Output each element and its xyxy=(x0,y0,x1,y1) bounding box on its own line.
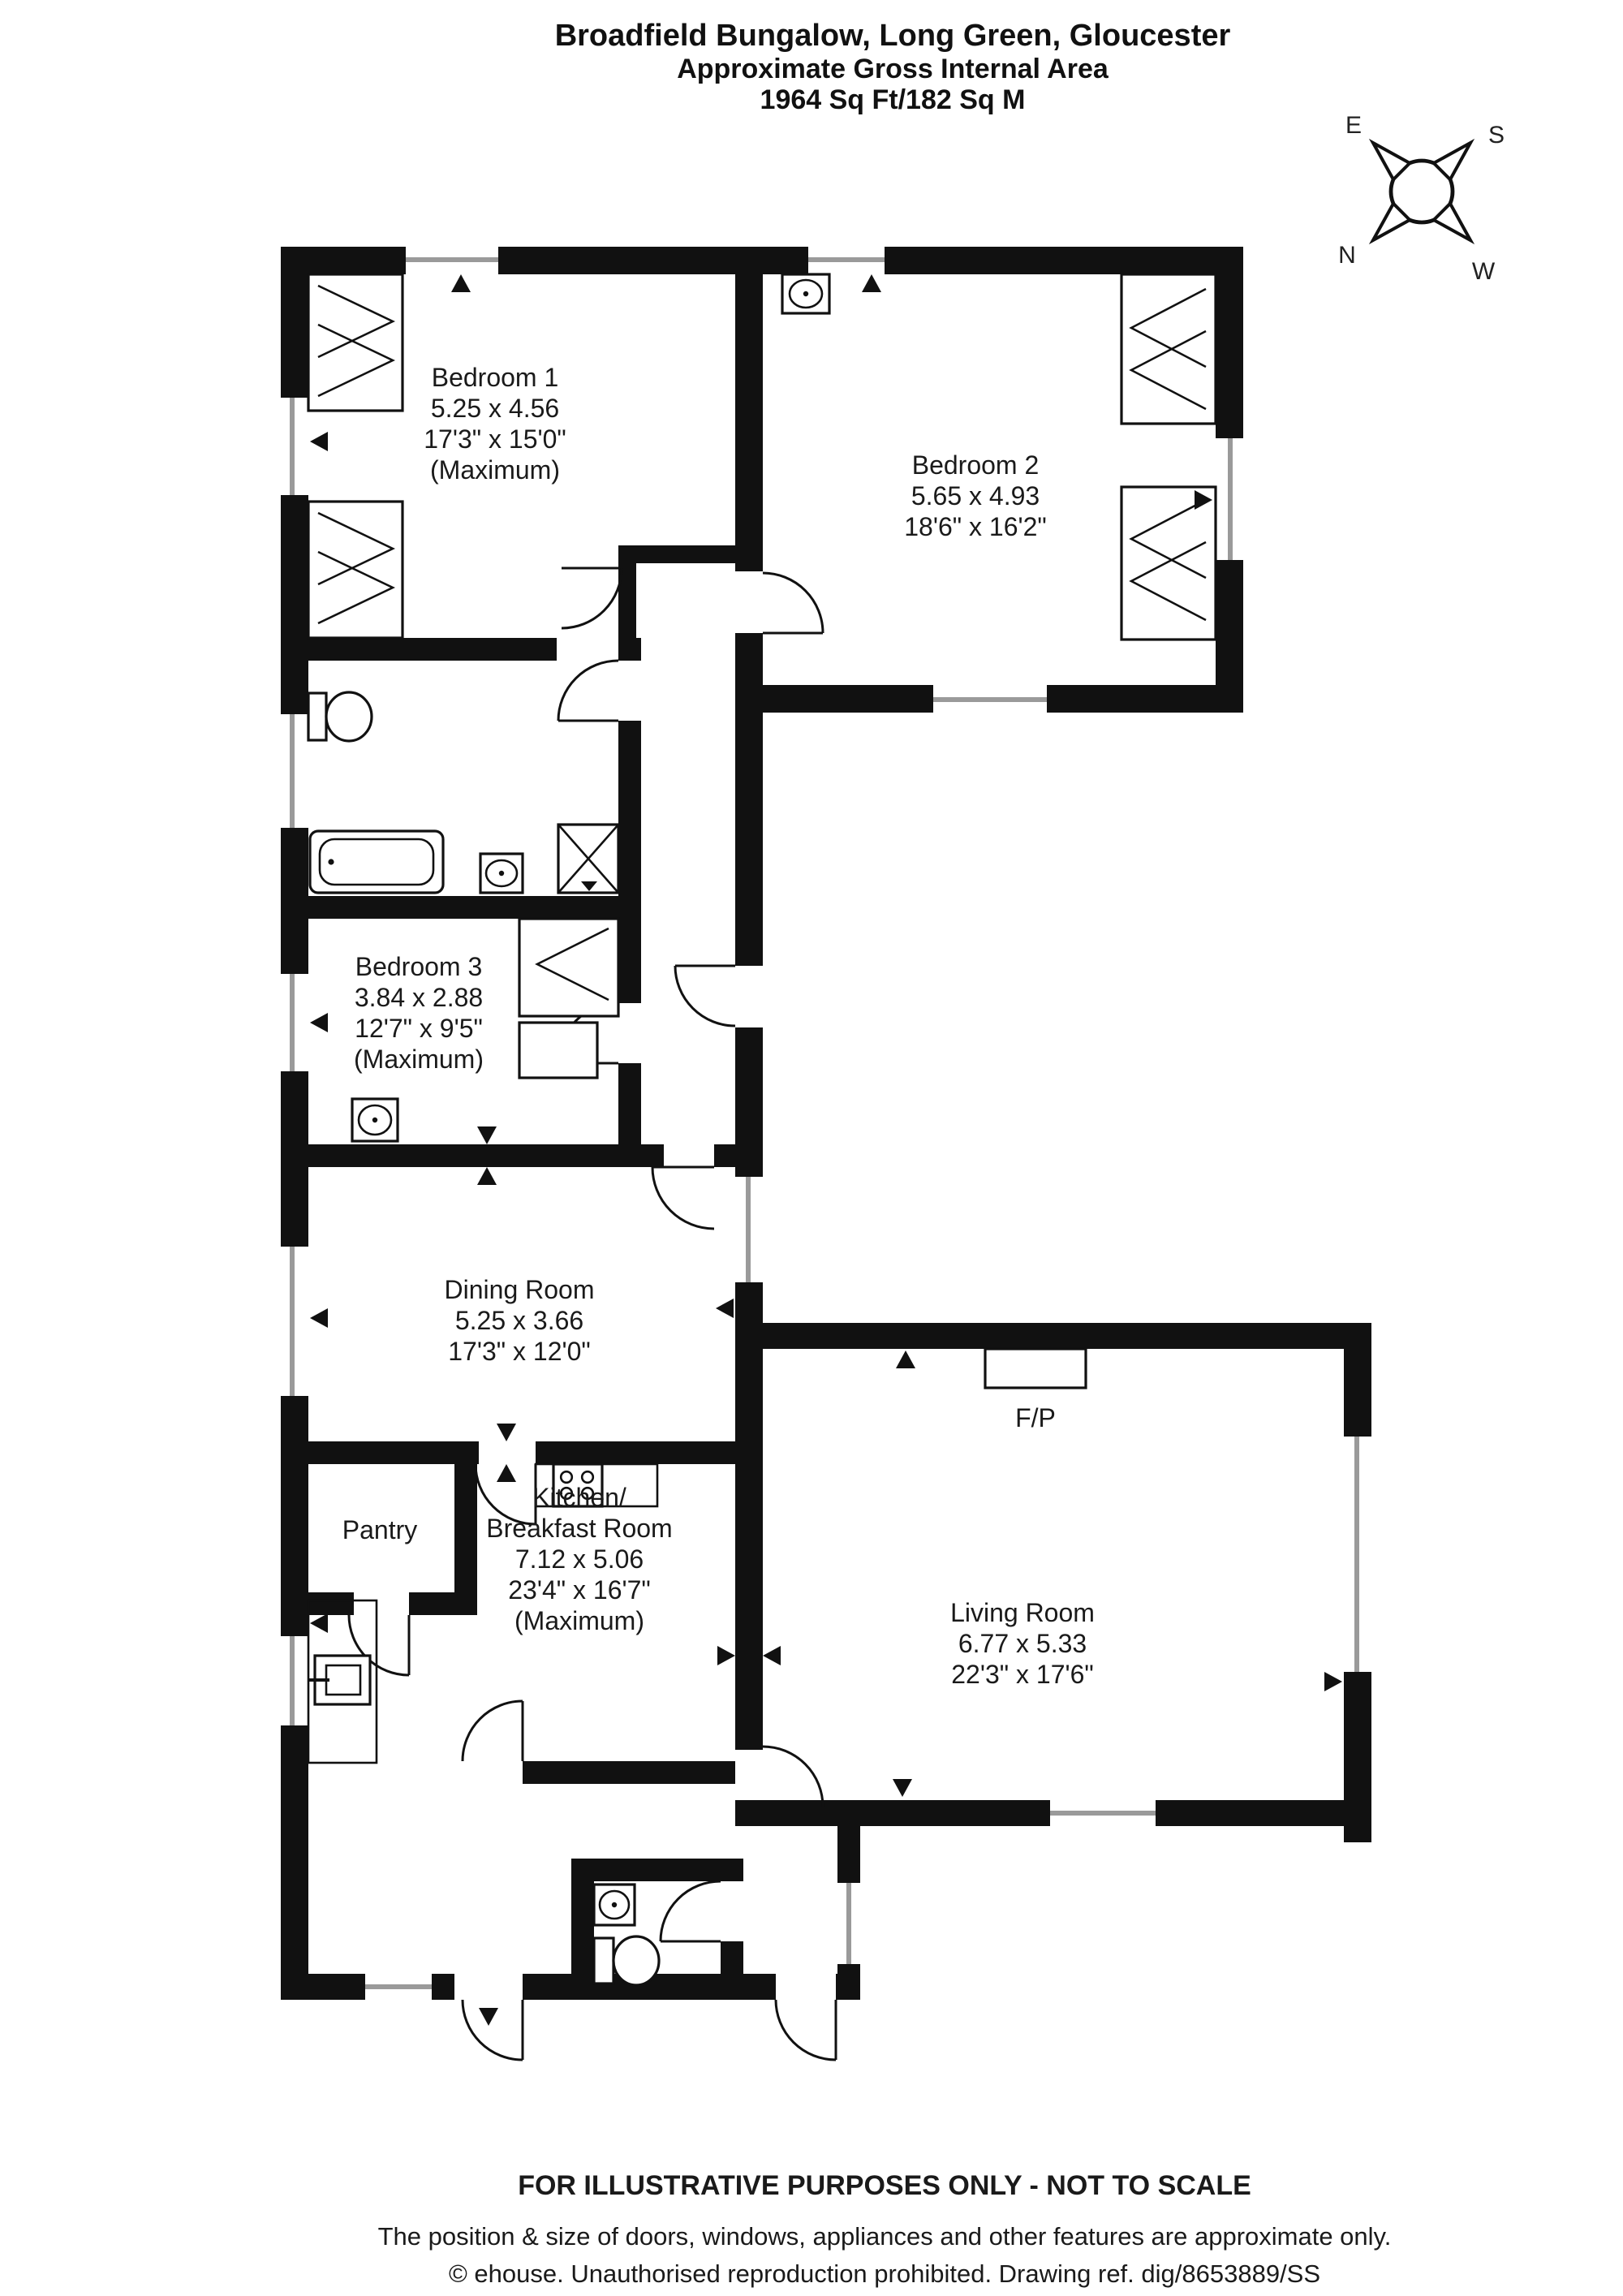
wardrobe-icon xyxy=(308,274,403,638)
door-bedroom1-hall xyxy=(562,568,622,628)
label-line: Bedroom 3 xyxy=(355,952,483,981)
title-line-3: 1964 Sq Ft/182 Sq M xyxy=(760,84,1026,115)
label-line: (Maximum) xyxy=(514,1606,644,1635)
label-line: 17'3" x 12'0" xyxy=(448,1337,591,1366)
label-line: Bedroom 1 xyxy=(432,363,559,392)
label-line: Living Room xyxy=(950,1598,1095,1627)
floor-plan-page: Broadfield Bungalow, Long Green, Glouces… xyxy=(0,0,1623,2295)
marker-triangle xyxy=(479,2008,498,2026)
toilet-icon xyxy=(594,1936,659,1985)
door-back xyxy=(776,2000,836,2060)
title-line-1: Broadfield Bungalow, Long Green, Glouces… xyxy=(555,19,1231,53)
compass-label-n: N xyxy=(1338,242,1356,269)
marker-triangle xyxy=(477,1167,497,1185)
marker-triangle xyxy=(451,274,471,292)
label-line: Dining Room xyxy=(445,1275,595,1304)
door-bedroom2 xyxy=(763,573,823,633)
label-line: Breakfast Room xyxy=(486,1514,672,1543)
marker-triangle xyxy=(497,1424,516,1441)
marker-triangle xyxy=(717,1646,735,1665)
footer-line-3: © ehouse. Unauthorised reproduction proh… xyxy=(449,2259,1320,2288)
compass-label-e: E xyxy=(1345,112,1362,139)
label-line: 7.12 x 5.06 xyxy=(515,1544,644,1574)
sink-icon xyxy=(308,1656,370,1704)
marker-triangle xyxy=(310,432,328,451)
label-line: 12'7" x 9'5" xyxy=(355,1014,483,1043)
door-hall-east xyxy=(675,966,735,1026)
door-kitchen-lobby xyxy=(463,1701,523,1761)
marker-triangle xyxy=(310,1308,328,1328)
marker-triangle xyxy=(716,1299,734,1318)
door-lobby-living xyxy=(763,1747,823,1807)
label-line: 5.25 x 4.56 xyxy=(431,394,559,423)
label-line: Kitchen/ xyxy=(532,1483,626,1512)
room-label-living: Living Room 6.77 x 5.33 22'3" x 17'6" xyxy=(950,1598,1095,1689)
marker-triangle xyxy=(310,1013,328,1032)
door-wc xyxy=(661,1881,721,1941)
room-label-pantry: Pantry xyxy=(342,1515,417,1544)
footer-line-1: FOR ILLUSTRATIVE PURPOSES ONLY - NOT TO … xyxy=(518,2170,1251,2201)
marker-triangle xyxy=(1324,1672,1342,1691)
door-hall-dining xyxy=(652,1167,714,1229)
label-line: 23'4" x 16'7" xyxy=(508,1575,651,1605)
plan-title: Broadfield Bungalow, Long Green, Glouces… xyxy=(555,19,1231,115)
sink-icon xyxy=(594,1885,635,1925)
footer-line-2: The position & size of doors, windows, a… xyxy=(378,2222,1392,2251)
marker-triangle xyxy=(862,274,881,292)
marker-triangle xyxy=(310,1613,328,1633)
marker-triangle xyxy=(893,1779,912,1797)
label-line: 5.65 x 4.93 xyxy=(911,481,1040,510)
sink-icon xyxy=(352,1099,398,1141)
label-line: 22'3" x 17'6" xyxy=(951,1660,1094,1689)
label-line: 18'6" x 16'2" xyxy=(904,512,1047,541)
compass-rose-icon: E S N W xyxy=(1338,112,1505,285)
bathtub-icon xyxy=(310,831,443,893)
label-line: 17'3" x 15'0" xyxy=(424,424,566,454)
label-line: 5.25 x 3.66 xyxy=(455,1306,583,1335)
title-line-2: Approximate Gross Internal Area xyxy=(677,54,1109,84)
marker-triangle xyxy=(763,1646,781,1665)
room-label-bedroom1: Bedroom 1 5.25 x 4.56 17'3" x 15'0" (Max… xyxy=(424,363,566,485)
sink-icon xyxy=(782,274,829,313)
room-label-dining: Dining Room 5.25 x 3.66 17'3" x 12'0" xyxy=(445,1275,595,1366)
marker-triangle xyxy=(477,1126,497,1144)
label-line: (Maximum) xyxy=(354,1045,484,1074)
room-label-bedroom3: Bedroom 3 3.84 x 2.88 12'7" x 9'5" (Maxi… xyxy=(354,952,484,1074)
room-label-bedroom2: Bedroom 2 5.65 x 4.93 18'6" x 16'2" xyxy=(904,450,1047,541)
label-line: 3.84 x 2.88 xyxy=(355,983,483,1012)
label-line: Bedroom 2 xyxy=(912,450,1040,480)
marker-triangle xyxy=(497,1464,516,1482)
marker-triangle xyxy=(896,1350,915,1368)
sink-icon xyxy=(480,854,523,893)
wardrobe-icon xyxy=(519,919,618,1078)
compass-label-s: S xyxy=(1488,122,1505,149)
door-bathroom xyxy=(558,661,618,721)
compass-label-w: W xyxy=(1472,258,1496,285)
label-line: (Maximum) xyxy=(430,455,560,485)
floor-plan: Broadfield Bungalow, Long Green, Glouces… xyxy=(0,0,1623,2295)
wardrobe-icon xyxy=(1121,274,1216,640)
room-label-fireplace: F/P xyxy=(1015,1403,1056,1432)
fireplace-icon xyxy=(985,1349,1086,1388)
shower-icon xyxy=(558,825,618,893)
label-line: 6.77 x 5.33 xyxy=(958,1629,1087,1658)
plan-footer: FOR ILLUSTRATIVE PURPOSES ONLY - NOT TO … xyxy=(378,2170,1392,2288)
toilet-icon xyxy=(308,692,372,741)
